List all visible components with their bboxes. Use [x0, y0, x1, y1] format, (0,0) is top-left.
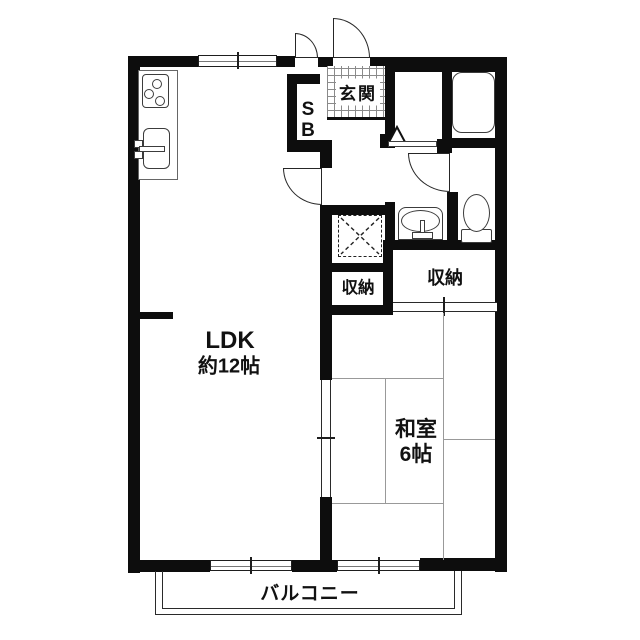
- tatami-line: [385, 379, 386, 504]
- ldk-washitsu-slider-tick: [317, 437, 335, 439]
- utility-door-arc: [295, 33, 318, 58]
- stove-burner-icon: [155, 96, 165, 106]
- closet-sliding-door: [393, 302, 497, 312]
- entrance-step-line: [327, 117, 385, 120]
- stove-burner-icon: [144, 89, 154, 99]
- tatami-line: [443, 313, 444, 560]
- washitsu-size-label: 6帖: [400, 438, 433, 468]
- kitchen-faucet-spout: [139, 146, 165, 152]
- floorplan: 玄関 S B 収納 収納 LDK 約12帖 和室 6帖 バルコニー: [0, 0, 640, 640]
- hall-storage-label: 収納: [342, 274, 375, 298]
- tatami-line: [332, 503, 443, 504]
- bedroom-storage-label: 収納: [427, 264, 463, 290]
- stove-burner-icon: [152, 79, 162, 89]
- toilet-partition-wall: [447, 192, 458, 240]
- washbasin-faucet-base: [412, 232, 433, 239]
- hall-wall-bottom: [320, 497, 332, 563]
- shoebox-label-b: B: [301, 120, 315, 142]
- bath-divider-wall: [442, 66, 452, 148]
- washing-machine-pan-cross: [338, 215, 382, 257]
- closet-divider-wall: [383, 240, 393, 315]
- entrance-door-arc: [333, 18, 370, 58]
- tatami-line: [443, 439, 495, 440]
- wall-bottom-3: [420, 558, 507, 571]
- kitchen-faucet-knob: [134, 151, 143, 159]
- ldk-wall-stub: [137, 312, 173, 319]
- toilet-bowl-icon: [463, 194, 490, 232]
- washroom-door-arc: [408, 153, 450, 192]
- wall-right: [495, 57, 507, 572]
- hall-wall-lower: [320, 205, 332, 380]
- hall-wall-upper: [320, 140, 332, 168]
- tatami-line: [332, 378, 443, 379]
- bathtub-icon: [452, 72, 495, 133]
- bath-threshold-bar: [388, 141, 437, 147]
- washer-alcove-top-wall: [330, 205, 390, 215]
- window-kitchen-tick: [237, 52, 239, 69]
- balcony-label: バルコニー: [258, 579, 362, 606]
- ldk-size-label: 約12帖: [198, 350, 260, 379]
- ldk-door-arc: [283, 168, 322, 205]
- entrance-label: 玄関: [336, 79, 380, 106]
- shoebox-label-s: S: [302, 99, 315, 121]
- hall-closet-top-wall: [330, 263, 390, 272]
